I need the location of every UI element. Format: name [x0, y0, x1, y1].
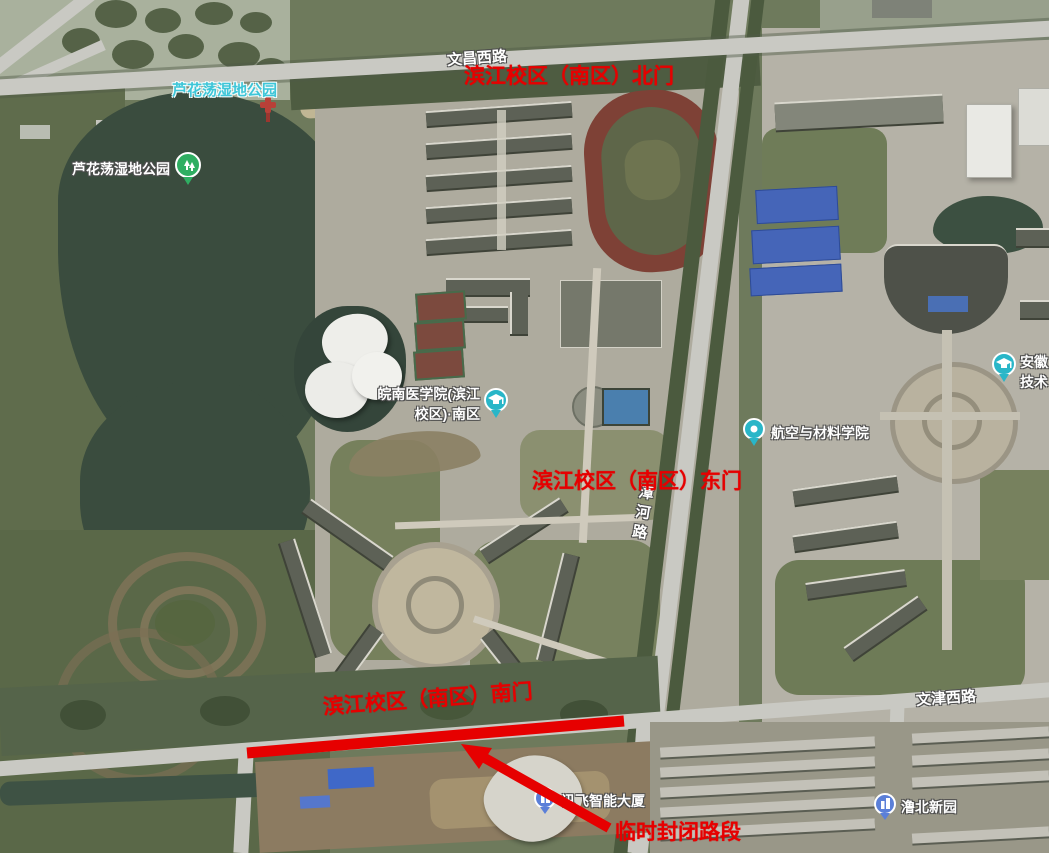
east-axis-path	[942, 330, 952, 650]
tree-cluster	[60, 700, 106, 730]
east-plaza-ring	[922, 392, 982, 450]
poi-label-wetland-park-far[interactable]: 芦花荡湿地公园	[172, 82, 277, 99]
college-pin-icon[interactable]	[483, 388, 509, 420]
dot-pin-icon[interactable]	[742, 418, 766, 448]
poi-tech-college-edge[interactable]: 安徽 技术	[991, 352, 1048, 392]
poi-iflytek[interactable]: 讯飞智能大厦	[533, 787, 645, 815]
tree-cluster	[168, 34, 204, 59]
poi-label-iflytek: 讯飞智能大厦	[561, 791, 645, 811]
poi-label-lubei: 澛北新园	[901, 797, 957, 817]
tennis-court	[413, 348, 465, 380]
tree-cluster	[112, 40, 154, 69]
college-pin-icon[interactable]	[991, 352, 1017, 384]
tree-cluster	[195, 2, 233, 25]
poi-label-tech-line1: 安徽	[1020, 352, 1048, 372]
east-cross-path	[880, 412, 1020, 420]
annotation-east-gate: 滨江校区（南区）东门	[532, 465, 742, 495]
tree-cluster	[155, 600, 215, 646]
blue-roof-detail	[928, 296, 968, 312]
tree-cluster	[240, 12, 272, 33]
poi-wetland-park-near[interactable]: 芦花荡湿地公园	[72, 152, 202, 186]
tree-cluster	[95, 0, 137, 28]
track-infield-patch	[623, 138, 682, 202]
building-pin-icon[interactable]	[533, 787, 557, 815]
poi-label-wetland-park-near: 芦花荡湿地公园	[72, 159, 170, 179]
tree-cluster	[145, 8, 181, 33]
east-edge-building	[1016, 228, 1049, 246]
dorm-connector	[497, 110, 506, 250]
poi-aero-materials[interactable]: 航空与材料学院	[742, 418, 869, 448]
building-pin-icon[interactable]	[873, 793, 897, 821]
blue-roof-building	[749, 264, 842, 297]
white-tower	[966, 104, 1012, 178]
ne-structure	[872, 0, 932, 18]
swimming-pool	[602, 388, 650, 426]
tree-cluster	[200, 696, 250, 726]
teaching-building	[510, 292, 528, 334]
poi-label-tech-line2: 技术	[1020, 372, 1048, 392]
library-building	[560, 280, 662, 348]
white-tower	[1018, 88, 1049, 146]
tennis-court	[414, 319, 466, 351]
tennis-court	[415, 290, 467, 322]
annotation-north-gate: 滨江校区（南区）北门	[464, 60, 674, 90]
satellite-map-canvas[interactable]: 文昌西路 文津西路 漳河路 芦花荡湿地公园 芦花荡湿地公园 皖南医学院(滨江 校…	[0, 0, 1049, 853]
construction-shack	[328, 767, 375, 789]
blue-roof-building	[755, 186, 839, 224]
poi-medical-college[interactable]: 皖南医学院(滨江 校区)·南区	[352, 384, 480, 424]
poi-label-medical-college-line2: 校区)·南区	[352, 404, 480, 424]
annotation-closed-road: 临时封闭路段	[615, 816, 741, 846]
east-edge-building	[1020, 300, 1049, 318]
park-pin-icon[interactable]	[174, 152, 202, 186]
east-green-patch	[980, 470, 1049, 580]
poi-label-aero-materials: 航空与材料学院	[771, 423, 869, 443]
plaza-inner-ring	[406, 576, 464, 634]
west-structure	[20, 125, 50, 139]
red-pavilion-roof	[265, 97, 271, 113]
poi-lubei-xinyuan[interactable]: 澛北新园	[873, 793, 957, 821]
red-pavilion-stem	[266, 113, 270, 122]
poi-label-medical-college-line1: 皖南医学院(滨江	[352, 384, 480, 404]
construction-shack	[300, 795, 331, 809]
blue-roof-building	[751, 226, 841, 265]
